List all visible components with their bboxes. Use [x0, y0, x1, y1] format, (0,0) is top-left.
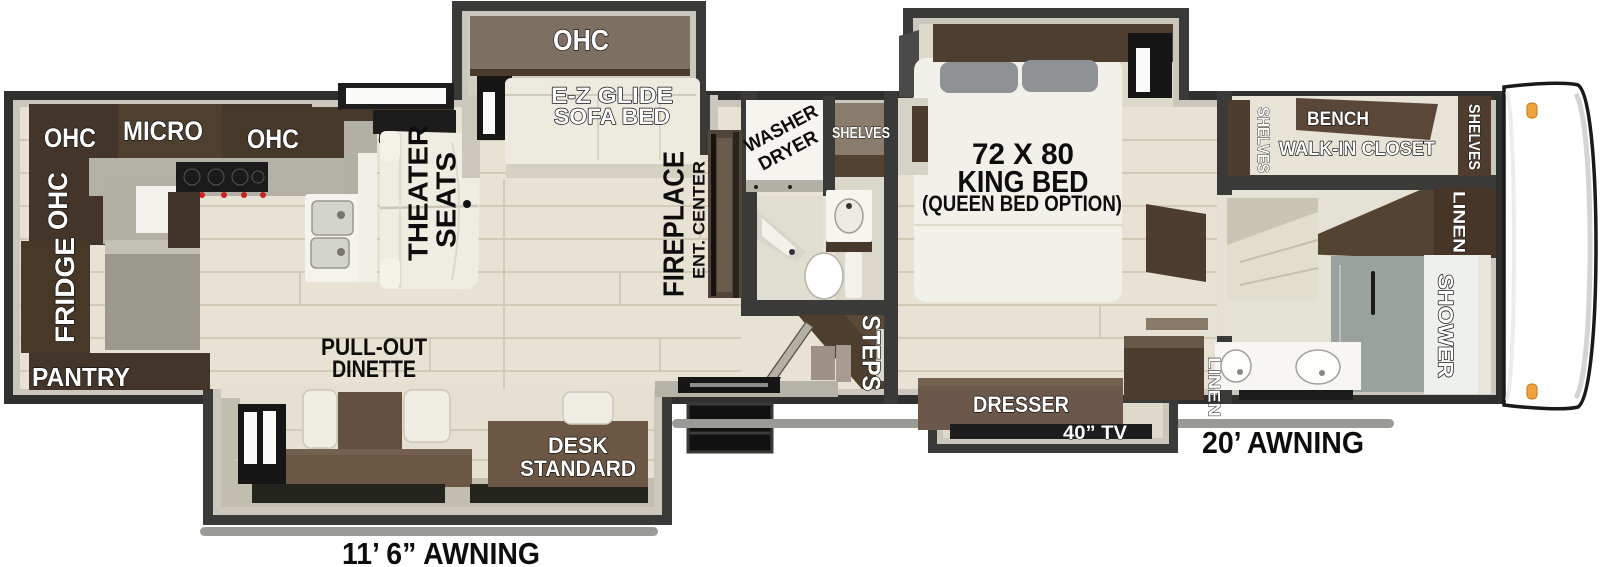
svg-text:SOFA BED: SOFA BED — [554, 104, 670, 129]
svg-text:OHC: OHC — [553, 25, 609, 57]
svg-text:SHELVES: SHELVES — [832, 125, 890, 142]
svg-text:THEATER: THEATER — [402, 125, 433, 261]
svg-text:FRIDGE: FRIDGE — [50, 237, 80, 343]
svg-text:SHELVES: SHELVES — [1465, 104, 1482, 170]
svg-text:SEATS: SEATS — [430, 152, 461, 248]
svg-text:PANTRY: PANTRY — [32, 362, 130, 392]
svg-text:DESK: DESK — [548, 433, 608, 458]
svg-text:20’ AWNING: 20’ AWNING — [1202, 425, 1364, 460]
svg-text:11’ 6” AWNING: 11’ 6” AWNING — [342, 536, 540, 567]
svg-text:LINEN: LINEN — [1450, 191, 1469, 253]
svg-text:DINETTE: DINETTE — [332, 356, 416, 383]
svg-text:FIREPLACE: FIREPLACE — [659, 151, 691, 297]
svg-text:(QUEEN BED OPTION): (QUEEN BED OPTION) — [922, 191, 1122, 216]
svg-text:STANDARD: STANDARD — [520, 456, 636, 481]
svg-text:WALK-IN CLOSET: WALK-IN CLOSET — [1279, 139, 1435, 160]
svg-text:STEPS: STEPS — [856, 315, 884, 391]
svg-text:SHOWER: SHOWER — [1433, 274, 1456, 378]
svg-text:MICRO: MICRO — [123, 116, 203, 146]
svg-text:BENCH: BENCH — [1307, 109, 1369, 130]
svg-text:40” TV: 40” TV — [1063, 423, 1127, 444]
svg-text:LINEN: LINEN — [1205, 357, 1224, 417]
svg-text:SHELVES: SHELVES — [1254, 107, 1271, 173]
svg-text:ENT. CENTER: ENT. CENTER — [689, 161, 708, 279]
svg-text:DRESSER: DRESSER — [973, 392, 1069, 417]
svg-text:OHC: OHC — [247, 124, 299, 154]
svg-text:OHC: OHC — [43, 172, 73, 230]
svg-text:OHC: OHC — [44, 123, 96, 153]
